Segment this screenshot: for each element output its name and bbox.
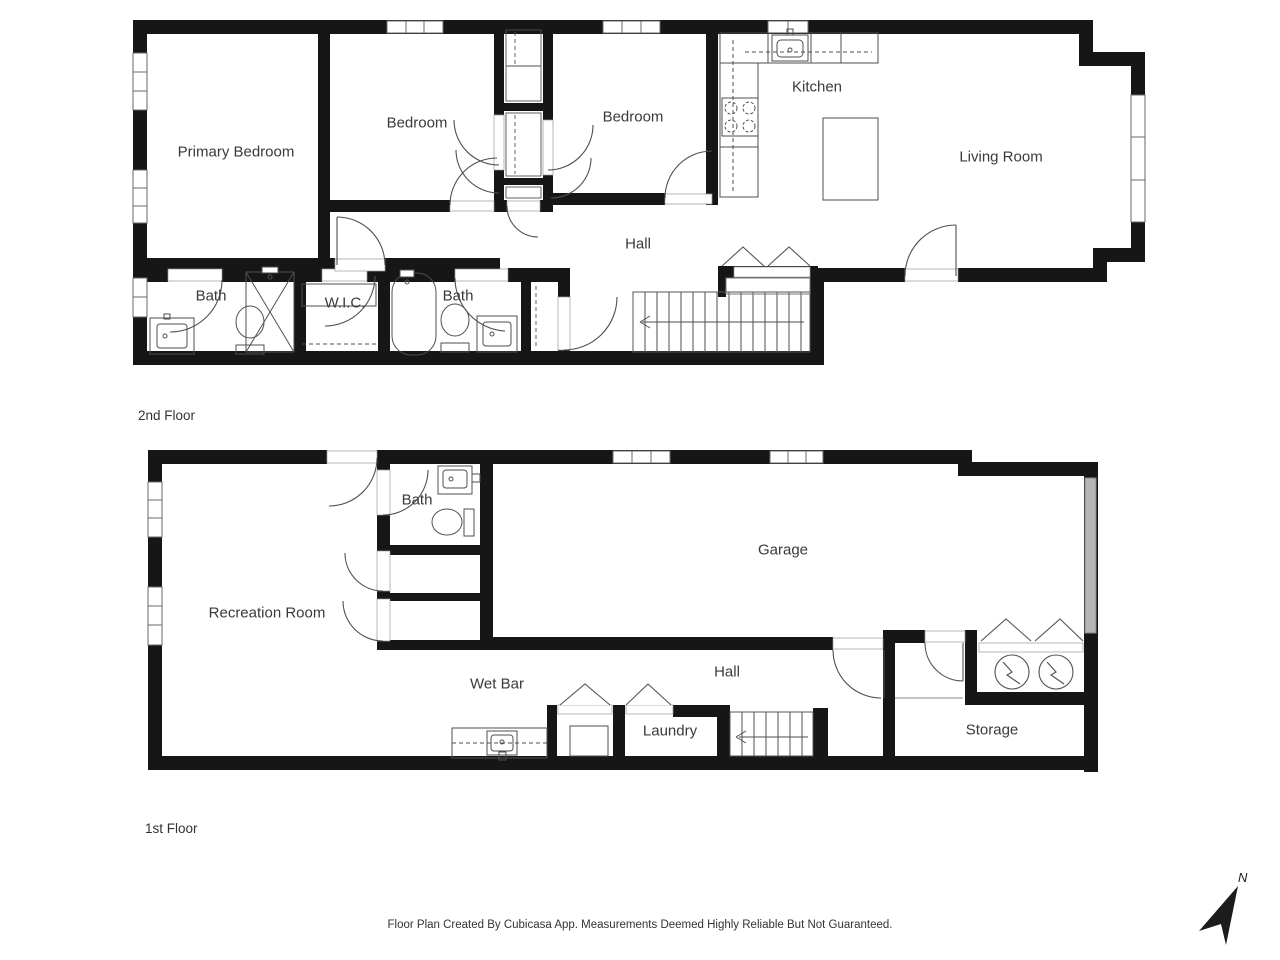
floor-plan-page: Primary Bedroom Bedroom Bedroom Kitchen … xyxy=(0,0,1280,960)
room-label-hall-1f: Hall xyxy=(714,664,740,681)
room-label-bath-2: Bath xyxy=(443,288,474,305)
room-label-living-room: Living Room xyxy=(959,149,1042,166)
bath3-sink-icon xyxy=(438,466,480,494)
room-label-bedroom-2: Bedroom xyxy=(603,109,664,126)
room-label-storage: Storage xyxy=(966,722,1019,739)
room-label-bath-1: Bath xyxy=(196,288,227,305)
bath2-toilet-icon xyxy=(441,304,469,352)
north-arrow-icon xyxy=(1199,886,1238,945)
floor-label-1st: 1st Floor xyxy=(145,821,198,836)
compass-north-label: N xyxy=(1238,870,1247,885)
water-heater-icons xyxy=(895,655,1073,698)
room-label-wic: W.I.C. xyxy=(325,295,366,312)
bath3-toilet-icon xyxy=(432,509,474,536)
room-label-recreation-room: Recreation Room xyxy=(209,605,326,622)
room-label-hall-2f: Hall xyxy=(625,236,651,253)
wic-shelf-icon xyxy=(302,284,376,344)
room-label-laundry: Laundry xyxy=(643,723,697,740)
bath2-sink-icon xyxy=(477,316,517,352)
room-label-wet-bar: Wet Bar xyxy=(470,676,524,693)
bathtub-icon xyxy=(392,270,436,355)
washer-icon xyxy=(570,726,608,756)
wet-bar-counter-icon xyxy=(452,728,547,760)
floor-label-2nd: 2nd Floor xyxy=(138,408,195,423)
bath1-toilet-icon xyxy=(236,306,264,354)
garage-door-icon xyxy=(1085,478,1096,633)
walls-2nd-floor xyxy=(133,20,1145,365)
stairs-icon-1st xyxy=(730,712,813,756)
footer-disclaimer: Floor Plan Created By Cubicasa App. Meas… xyxy=(0,919,1280,931)
stove-icon xyxy=(722,98,758,136)
kitchen-island-icon xyxy=(823,118,878,200)
room-label-bath-3: Bath xyxy=(402,492,433,509)
bath1-sink-icon xyxy=(150,314,194,354)
room-label-bedroom-1: Bedroom xyxy=(387,115,448,132)
room-label-kitchen: Kitchen xyxy=(792,79,842,96)
room-label-primary-bedroom: Primary Bedroom xyxy=(178,144,295,161)
room-label-garage: Garage xyxy=(758,542,808,559)
